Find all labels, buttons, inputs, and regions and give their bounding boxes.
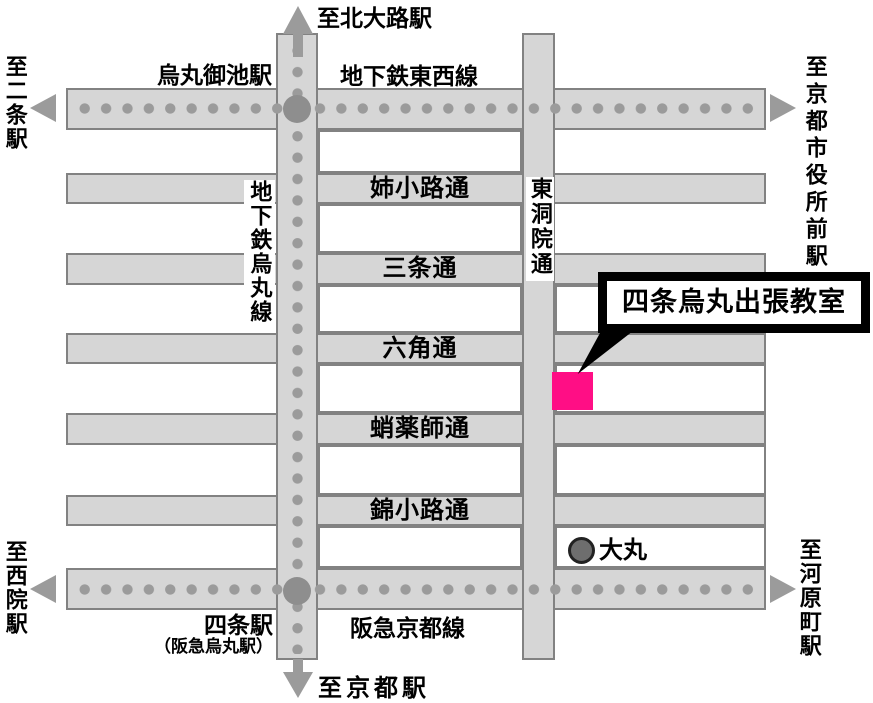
east-arrow-bottom-icon — [770, 575, 796, 603]
shijo-station-label: 四条駅 — [140, 613, 273, 638]
to-nijo-label: 至二条駅 — [3, 55, 27, 151]
north-arrow-icon — [283, 6, 313, 34]
takoyakushi-street-label: 蛸薬師通 — [318, 416, 522, 442]
to-saiin-label: 至西院駅 — [3, 540, 27, 636]
city-block — [318, 364, 522, 413]
hankyu-line-dotted-line — [74, 584, 760, 595]
karasuma-subway-dotted-line — [292, 40, 303, 654]
shijo-station-label-group: 四条駅 （阪急烏丸駅） — [140, 613, 273, 656]
kyoto-access-map: 地下鉄烏丸線 東洞院通 姉小路通 三条通 六角通 蛸薬師通 錦小路通 至北大路駅… — [0, 0, 873, 703]
to-kitaoji-label: 至北大路駅 — [317, 6, 432, 31]
shijo-station-dot — [283, 577, 311, 605]
higashinotoin-street-bar — [522, 33, 555, 660]
karasuma-oike-station-label: 烏丸御池駅 — [118, 63, 272, 88]
west-arrow-top-icon — [30, 94, 56, 122]
city-block — [318, 204, 522, 253]
karasuma-line-label-backing: 地下鉄烏丸線 — [244, 180, 275, 330]
daimaru-marker-icon — [568, 537, 595, 564]
karasuma-line-label: 地下鉄烏丸線 — [248, 180, 272, 330]
karasuma-oike-station-dot — [283, 95, 311, 123]
north-arrow-stem — [293, 33, 303, 57]
aneyakoji-street-label: 姉小路通 — [318, 176, 522, 202]
east-arrow-top-icon — [770, 94, 796, 122]
south-arrow-icon — [283, 672, 313, 698]
to-shiyakushomae-label: 至京都市役所前駅 — [803, 55, 827, 271]
to-kyoto-station-label: 至京都駅 — [318, 676, 430, 702]
hankyu-karasuma-station-sublabel: （阪急烏丸駅） — [140, 638, 273, 656]
city-block — [318, 285, 522, 333]
tozai-line-label: 地下鉄東西線 — [340, 64, 478, 89]
nishikikoji-street-label: 錦小路通 — [318, 498, 522, 524]
tozai-subway-dotted-line — [74, 103, 760, 114]
sanjo-street-label: 三条通 — [318, 256, 522, 282]
rokkaku-street-label: 六角通 — [318, 336, 522, 362]
city-block — [318, 130, 522, 173]
city-block — [318, 445, 522, 495]
city-block — [318, 526, 522, 568]
west-arrow-bottom-icon — [30, 575, 56, 603]
classroom-callout-box: 四条烏丸出張教室 — [598, 272, 870, 333]
higashinotoin-street-label: 東洞院通 — [528, 177, 552, 281]
classroom-marker — [552, 372, 593, 410]
daimaru-label: 大丸 — [599, 538, 647, 564]
hankyu-kyoto-line-label: 阪急京都線 — [350, 616, 465, 641]
city-block — [555, 445, 766, 495]
to-kawaramachi-label: 至河原町駅 — [797, 538, 821, 658]
classroom-callout-label: 四条烏丸出張教室 — [622, 288, 846, 317]
higashinotoin-label-backing: 東洞院通 — [526, 177, 554, 281]
